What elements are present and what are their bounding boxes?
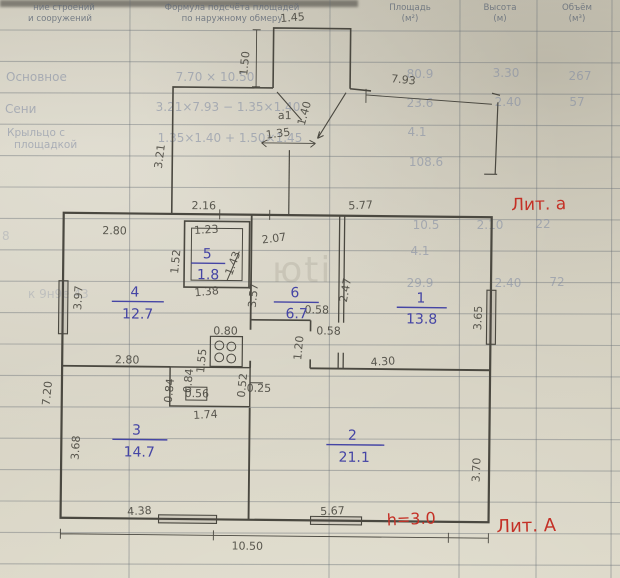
height-note: h=3.0 [386, 508, 436, 529]
dim: 2.80 [102, 224, 127, 237]
room2-area: 21.1 [339, 450, 370, 466]
dim: 5.67 [320, 504, 345, 518]
row5-volume: 22 [535, 217, 550, 231]
form-headers: ние строений и сооружений Формула подсчё… [28, 3, 592, 24]
dim: 1.55 [194, 348, 209, 374]
dim: 0.80 [213, 324, 238, 337]
dim: 1.43 [223, 250, 244, 278]
dim: 10.50 [231, 540, 263, 553]
row5-area: 10.5 [413, 218, 440, 232]
porch-label: а1 [278, 109, 292, 122]
row5-height: 2.10 [477, 218, 504, 232]
row4-area: 108.6 [409, 155, 443, 169]
dim: 3.21 [152, 143, 168, 169]
watermark: юti [272, 250, 332, 291]
dim: 1.38 [194, 284, 220, 299]
dim: 3.57 [246, 283, 261, 309]
room5-number: 5 [203, 246, 212, 262]
dim: 1.74 [193, 408, 218, 422]
row1-height: 3.30 [493, 66, 520, 80]
dim: 3.70 [470, 457, 484, 482]
dim: 4.38 [127, 504, 152, 518]
dim: 2.07 [261, 230, 287, 246]
dim: 3.65 [471, 305, 485, 330]
dim: 3.68 [69, 435, 84, 460]
dim: 1.50 [237, 51, 252, 77]
row1-volume: 267 [569, 69, 592, 83]
dim: 0.84 [162, 378, 177, 404]
col-objects-header: ние строений [33, 3, 95, 13]
dim: 0.58 [304, 303, 329, 316]
room3-number: 3 [132, 422, 141, 438]
row3-label-1: Крыльцо с [7, 127, 65, 139]
dim: 7.93 [391, 72, 417, 87]
form-entries-faded: Основное 7.70 × 10.50 80.9 3.30 267 Сени… [2, 66, 591, 301]
dim: 1.45 [280, 10, 305, 25]
liter-a-label: Лит. а [511, 194, 566, 215]
col-area-header: Площадь [389, 3, 431, 13]
row3-area: 4.1 [407, 125, 426, 139]
svg-text:по наружному обмеру: по наружному обмеру [182, 14, 283, 24]
room1-number: 1 [416, 290, 425, 306]
dim: 2.80 [115, 353, 140, 366]
annex-walls [172, 27, 501, 217]
row1-label: Основное [6, 70, 67, 84]
room3-area: 14.7 [124, 444, 155, 460]
bleed-artifact: 8 [2, 229, 10, 243]
row7-volume: 72 [549, 275, 564, 289]
dim: 3.97 [71, 285, 86, 310]
room1-area: 13.8 [406, 311, 437, 327]
dim: 1.20 [291, 335, 306, 361]
room6-number: 6 [290, 285, 299, 301]
svg-text:и сооружений: и сооружений [28, 14, 92, 24]
stove-icon [210, 336, 242, 366]
dim: 1.23 [194, 223, 219, 237]
floorplan-sheet: ние строений и сооружений Формула подсчё… [0, 0, 620, 578]
col-volume-header: Объём [562, 3, 592, 13]
room2-number: 2 [348, 428, 357, 444]
col-height-header: Высота [484, 3, 517, 13]
dim: 5.77 [348, 198, 373, 212]
row3-label-2: площадкой [14, 139, 77, 151]
row6-area: 4.1 [410, 244, 429, 258]
room6-area: 6.7 [285, 306, 307, 322]
dim: 1.52 [168, 249, 183, 275]
dim: 0.56 [185, 387, 210, 400]
row2-label: Сени [5, 102, 36, 116]
row2-volume: 57 [569, 95, 584, 109]
row7-area: 29.9 [407, 276, 434, 290]
row2-height: 2.40 [495, 95, 522, 109]
room5-area: 1.8 [197, 267, 219, 283]
dim: 2.16 [192, 199, 217, 212]
svg-text:(м²): (м²) [402, 14, 419, 24]
dim: 7.20 [40, 380, 55, 406]
room4-number: 4 [130, 284, 139, 300]
row7-height: 2.40 [495, 276, 522, 290]
room4-area: 12.7 [122, 306, 153, 322]
svg-text:(м): (м) [493, 14, 506, 24]
dim: 4.30 [370, 354, 395, 368]
scanned-floorplan-page: ние строений и сооружений Формула подсчё… [0, 0, 620, 578]
dim: 0.25 [247, 382, 272, 395]
svg-text:(м³): (м³) [569, 14, 586, 24]
liter-A-label: Лит. А [496, 515, 557, 537]
dim: 0.58 [316, 324, 341, 337]
